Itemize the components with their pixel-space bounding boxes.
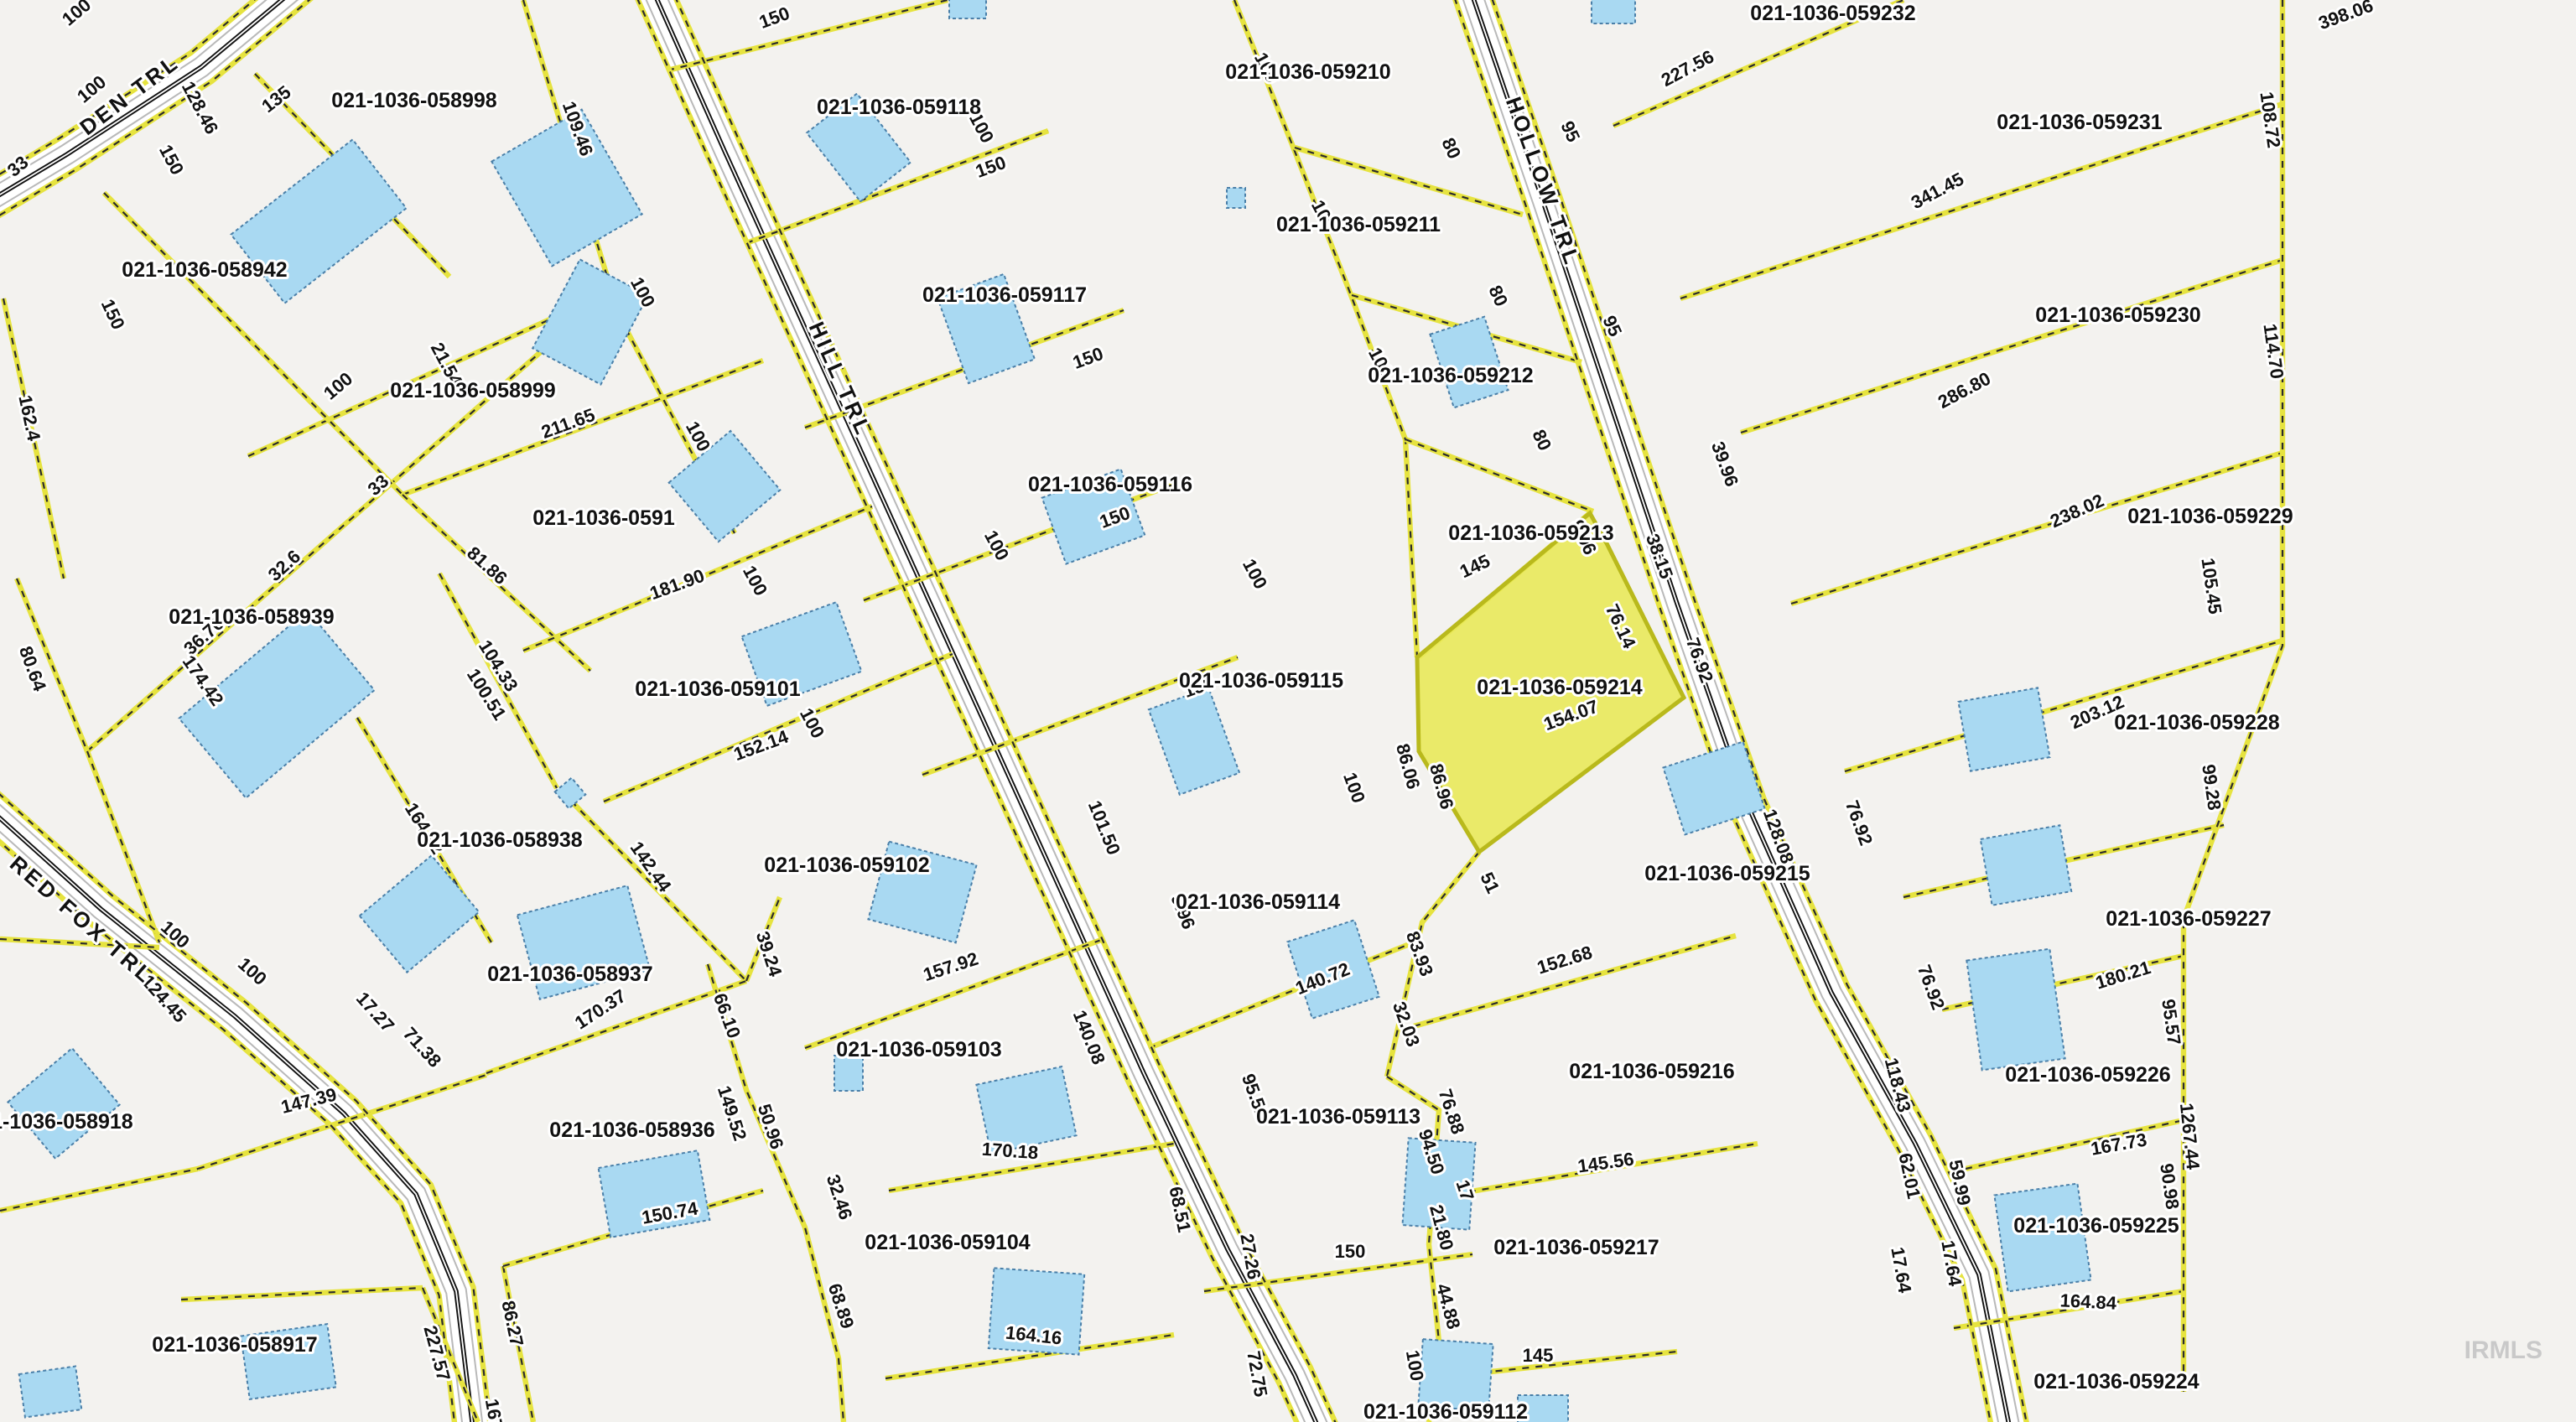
parcel-label-059101[interactable]: 021-1036-059101 — [635, 677, 800, 701]
dimension-label: 71.38 — [399, 1023, 445, 1072]
parcel-label-058999[interactable]: 021-1036-058999 — [390, 379, 555, 402]
dimension-label: 66.10 — [709, 990, 745, 1041]
parcel-label-059217[interactable]: 021-1036-059217 — [1493, 1236, 1659, 1259]
dimension-label: 170.18 — [981, 1139, 1039, 1164]
parcel-label-059213[interactable]: 021-1036-059213 — [1448, 522, 1613, 545]
parcel-label-059103[interactable]: 021-1036-059103 — [836, 1038, 1001, 1061]
dimension-label: 33 — [364, 470, 393, 500]
parcel-label-059214-selected[interactable]: 021-1036-059214 — [1477, 676, 1642, 699]
dimension-label: 180.21 — [2093, 957, 2153, 994]
building-footprint — [669, 431, 781, 542]
dimension-label: 145 — [1523, 1345, 1554, 1366]
building-footprint — [1958, 688, 2049, 771]
parcel-label-058938[interactable]: 021-1036-058938 — [417, 828, 582, 852]
dimension-label: 100 — [234, 953, 271, 989]
parcel-label-058939[interactable]: 021-1036-058939 — [169, 605, 334, 629]
dimension-label: 211.65 — [538, 404, 598, 443]
dimension-label: 83.93 — [1402, 928, 1437, 978]
dimension-label: 17.27 — [352, 988, 398, 1036]
parcel-boundary-dash — [1741, 260, 2283, 433]
building-footprint — [1430, 317, 1508, 408]
dimension-label: 145 — [1457, 550, 1493, 582]
dimension-label: 167 — [481, 1397, 507, 1422]
dimension-label: 90.98 — [2156, 1162, 2183, 1211]
parcel-label-059118[interactable]: 021-1036-059118 — [817, 96, 981, 119]
dimension-label: 238.02 — [2047, 490, 2107, 532]
dimension-label: 101.50 — [1084, 797, 1124, 858]
dimension-label: 32.46 — [823, 1172, 857, 1222]
dimension-label: 76.92 — [1841, 797, 1877, 848]
dimension-label: 80 — [1484, 282, 1512, 309]
dimension-label: 95 — [1556, 117, 1584, 145]
parcel-boundary — [1234, 0, 1417, 657]
parcel-label-059114[interactable]: 021-1036-059114 — [1176, 890, 1340, 914]
building-footprint — [1149, 688, 1239, 794]
dimension-label: 181.90 — [647, 565, 708, 605]
building-footprint — [1592, 0, 1635, 23]
dimension-label: 398.06 — [2316, 0, 2376, 34]
dimension-label: 100 — [980, 527, 1013, 563]
dimension-label: 150 — [97, 296, 129, 333]
building-footprint — [19, 1367, 82, 1418]
parcel-label-059112[interactable]: 021-1036-059112 — [1363, 1400, 1528, 1422]
parcel-label-058998[interactable]: 021-1036-058998 — [331, 89, 496, 112]
parcel-label-059104[interactable]: 021-1036-059104 — [865, 1231, 1030, 1254]
parcel-label-6-0591[interactable]: 021-1036-0591 — [532, 506, 675, 530]
dimension-label: 100 — [319, 368, 356, 404]
building-footprint — [491, 110, 641, 267]
parcel-label-059228[interactable]: 021-1036-059228 — [2114, 711, 2279, 734]
parcel-boundary-dash — [1966, 1120, 2184, 1169]
parcel-label-059229[interactable]: 021-1036-059229 — [2127, 505, 2293, 528]
dimension-label: 80 — [1528, 426, 1555, 454]
parcel-boundary-dash — [1234, 0, 1417, 657]
parcel-label-059210[interactable]: 021-1036-059210 — [1225, 60, 1390, 84]
building-footprint — [1227, 188, 1245, 208]
parcel-label-059232[interactable]: 021-1036-059232 — [1750, 2, 1915, 25]
parcel-label-059226[interactable]: 021-1036-059226 — [2005, 1063, 2170, 1087]
dimension-label: 286.80 — [1935, 368, 1994, 413]
building-footprint — [949, 0, 986, 18]
irmls-watermark: IRMLS — [2464, 1336, 2542, 1364]
parcel-label-059216[interactable]: 021-1036-059216 — [1569, 1060, 1734, 1083]
dimension-label: 100 — [1239, 555, 1271, 592]
dimension-label: 128.46 — [178, 78, 223, 138]
parcel-label-059211[interactable]: 021-1036-059211 — [1276, 213, 1441, 236]
dimension-label: 150 — [1070, 343, 1106, 373]
building-footprint — [1981, 825, 2071, 905]
parcel-label-059225[interactable]: 021-1036-059225 — [2013, 1214, 2179, 1238]
parcel-label-059231[interactable]: 021-1036-059231 — [1997, 111, 2162, 134]
dimension-label: 150 — [756, 3, 792, 33]
dimension-label: 152.14 — [731, 725, 792, 765]
dimension-label: 150 — [1335, 1241, 1366, 1262]
dimension-label: 157.92 — [921, 948, 981, 986]
building-footprint — [8, 1048, 119, 1159]
building-footprint — [360, 855, 479, 972]
dimension-label: 17.64 — [1887, 1245, 1915, 1295]
building-footprint — [532, 259, 648, 384]
parcel-label-059212[interactable]: 021-1036-059212 — [1368, 364, 1533, 387]
parcel-map[interactable]: 10010033128.46150135109.46150162.421.541… — [0, 0, 2576, 1422]
dimension-label: 105.45 — [2197, 557, 2225, 615]
dimension-label: 86.27 — [497, 1299, 527, 1348]
dimension-label: 100 — [1339, 770, 1369, 806]
dimension-label: 81.86 — [463, 542, 512, 589]
parcel-label-058942[interactable]: 021-1036-058942 — [122, 258, 287, 282]
road-hill-trl[interactable] — [642, 0, 1325, 1422]
parcel-label-059113[interactable]: 021-1036-059113 — [1256, 1105, 1420, 1129]
parcel-label-059230[interactable]: 021-1036-059230 — [2035, 304, 2200, 327]
parcel-label-058918[interactable]: 021-1036-058918 — [0, 1110, 133, 1134]
dimension-label: 162.4 — [14, 393, 44, 444]
dimension-label: 51 — [1476, 869, 1504, 896]
dimension-label: 80 — [1437, 134, 1465, 162]
parcel-boundary-dash — [2184, 0, 2283, 1392]
dimension-label: 32.6 — [264, 546, 305, 585]
dimension-label: 39.96 — [1707, 439, 1742, 489]
dimension-label: 167.73 — [2089, 1129, 2148, 1159]
parcel-label-058936[interactable]: 021-1036-058936 — [549, 1118, 714, 1142]
parcel-label-059102[interactable]: 021-1036-059102 — [764, 854, 929, 877]
dimension-label: 76.92 — [1914, 962, 1949, 1012]
dimension-label: 152.68 — [1535, 942, 1595, 978]
dimension-label: 50.96 — [754, 1102, 788, 1152]
building-footprint — [555, 778, 586, 809]
dimension-label: 99.28 — [2198, 763, 2225, 812]
dimension-label: 100 — [739, 562, 771, 599]
dimension-label: 100 — [58, 0, 95, 30]
building-footprint — [1966, 949, 2064, 1071]
parcel-label-059116[interactable]: 021-1036-059116 — [1028, 473, 1192, 496]
parcel-label-059215[interactable]: 021-1036-059215 — [1644, 862, 1810, 885]
parcel-label-059227[interactable]: 021-1036-059227 — [2106, 907, 2271, 931]
dimension-label: 164.84 — [2059, 1290, 2117, 1314]
building-footprint — [1994, 1184, 2090, 1292]
dimension-label: 95.57 — [2158, 998, 2184, 1046]
parcel-label-059117[interactable]: 021-1036-059117 — [922, 283, 1087, 307]
dimension-label: 150 — [155, 141, 188, 178]
dimension-label: 145.56 — [1576, 1149, 1635, 1177]
parcel-label-058937[interactable]: 021-1036-058937 — [487, 963, 652, 986]
parcel-label-059115[interactable]: 021-1036-059115 — [1179, 669, 1343, 693]
parcel-label-058917[interactable]: 021-1036-058917 — [152, 1333, 317, 1357]
parcel-label-059224[interactable]: 021-1036-059224 — [2033, 1370, 2199, 1393]
dimension-label: 1267.44 — [2176, 1102, 2204, 1170]
parcel-boundary — [2184, 0, 2283, 1392]
